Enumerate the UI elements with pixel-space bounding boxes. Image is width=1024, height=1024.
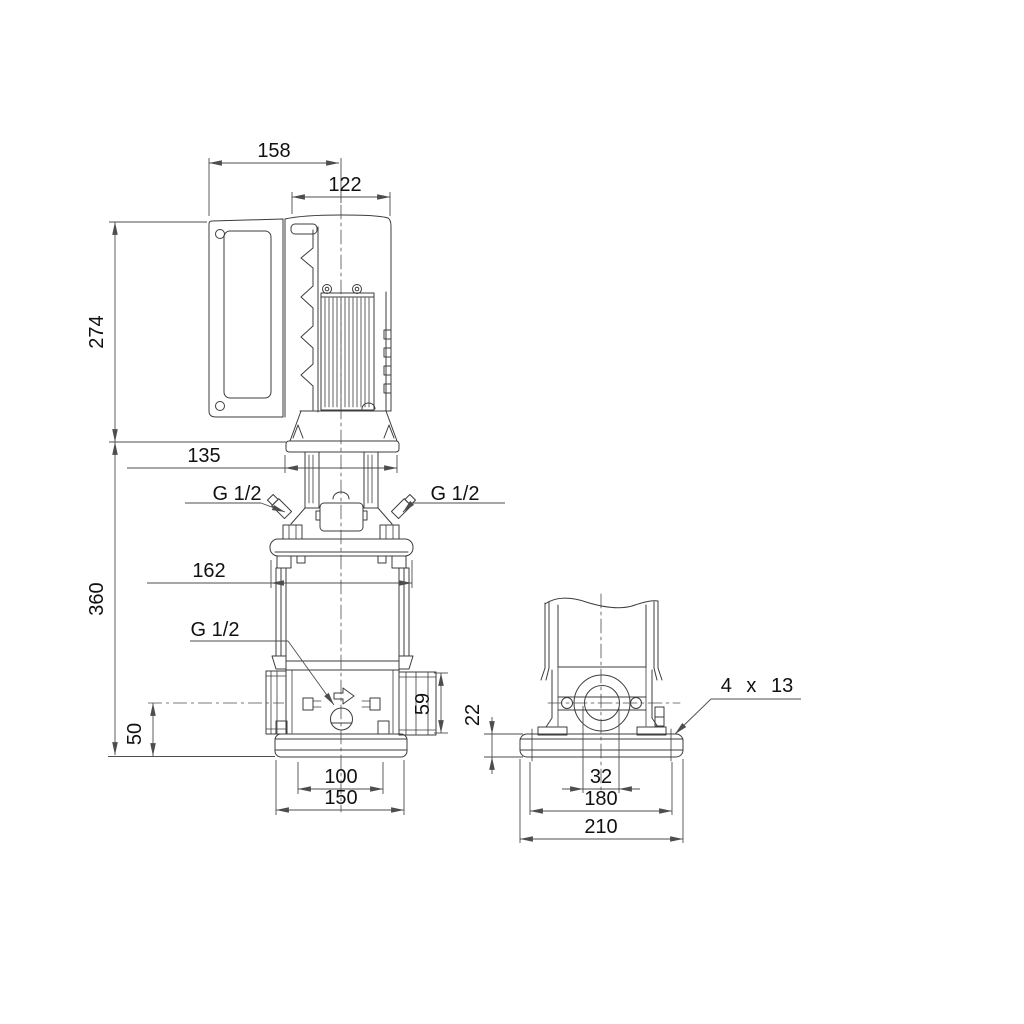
motor-cooling-fins	[301, 227, 318, 412]
front-view	[209, 205, 436, 812]
drawing-canvas: 158 122 274 135 G 1/2 G 1/2 162 360	[0, 0, 1024, 1024]
port-label-top-right: G 1/2	[431, 483, 480, 505]
coupling-guard-right	[364, 452, 378, 508]
chamber-section	[266, 670, 436, 735]
gauge-plug-left	[303, 698, 313, 710]
sleeve-break-section	[541, 598, 662, 680]
motor-body	[285, 215, 391, 411]
staybolt-bracket-left	[272, 656, 286, 669]
control-box	[209, 219, 285, 417]
pump-base-side	[520, 729, 683, 761]
dim-label-162: 162	[192, 560, 225, 582]
head-flange-plate	[270, 539, 413, 556]
side-view	[520, 594, 683, 792]
front-view-dimensions: 158 122 274 135 G 1/2 G 1/2 162 360	[86, 140, 505, 815]
dim-label-50: 50	[124, 723, 146, 745]
pump-head	[267, 452, 416, 568]
bolt-holes-label: 4 x 13	[721, 675, 793, 697]
flow-direction-arrow-icon	[334, 688, 354, 704]
dim-label-180: 180	[584, 788, 617, 810]
screw-icon	[323, 285, 332, 294]
coupling-guard-left	[305, 452, 319, 508]
motor-heatsink	[321, 285, 375, 411]
dim-label-32: 32	[590, 766, 612, 788]
motor-flange	[286, 411, 399, 452]
dim-label-122: 122	[328, 174, 361, 196]
cable-gland	[362, 403, 375, 409]
drain-plug	[331, 708, 353, 730]
coupling-block	[320, 503, 363, 531]
chamber-side	[538, 667, 666, 735]
dim-label-210: 210	[584, 816, 617, 838]
dim-label-158: 158	[257, 140, 290, 162]
dim-label-135: 135	[187, 445, 220, 467]
pump-dimensional-drawing: 158 122 274 135 G 1/2 G 1/2 162 360	[0, 0, 1024, 1024]
control-box-hole-bottom	[216, 402, 225, 411]
screw-icon	[353, 285, 362, 294]
break-line	[545, 598, 658, 608]
hex-nut-left	[283, 525, 302, 539]
control-box-panel	[224, 231, 271, 398]
drain-port-label: G 1/2	[191, 619, 240, 641]
dim-label-59: 59	[412, 693, 434, 715]
dim-label-150: 150	[324, 787, 357, 809]
dim-label-274: 274	[86, 315, 108, 348]
gauge-plug-right	[370, 698, 380, 710]
control-box-hole-top	[216, 230, 225, 239]
dim-label-22: 22	[462, 704, 484, 726]
dim-label-360: 360	[86, 582, 108, 615]
staybolt-bracket-right	[399, 656, 413, 669]
hex-nut-right	[380, 525, 399, 539]
port-label-top-left: G 1/2	[213, 483, 262, 505]
head-port-plug-right	[391, 494, 416, 519]
dim-label-100: 100	[324, 766, 357, 788]
